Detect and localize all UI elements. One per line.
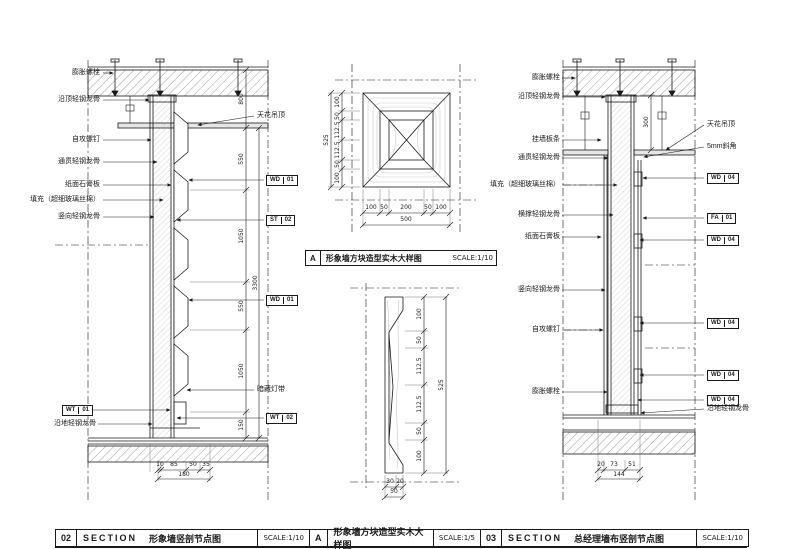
finish-tag-number: 01: [284, 177, 297, 184]
dimension-value: 35: [202, 462, 210, 468]
material-label: 竖向轻钢龙骨: [518, 286, 560, 294]
finish-tag-code: WD: [267, 297, 284, 304]
dimension-value: 1050: [239, 363, 245, 378]
drawing-number: A: [310, 530, 328, 546]
dimension-value: 550: [239, 300, 245, 311]
finish-tag-code: WT: [267, 415, 283, 422]
dimension-total: 180: [178, 472, 189, 478]
material-label: 沿顶轻钢龙骨: [58, 96, 100, 104]
finish-tag-code: WD: [708, 175, 725, 182]
dimension-value: 50: [417, 336, 423, 344]
dimension-value: 50: [335, 160, 341, 168]
drawing-title: 形象墙方块造型实木大样图: [328, 530, 433, 546]
dimension-value: 100: [335, 172, 341, 183]
finish-tag-number: 01: [284, 297, 297, 304]
dimension-value: 300: [644, 116, 650, 127]
finish-tag: WD 04: [707, 370, 739, 381]
material-label: 挂墙板条: [532, 136, 560, 144]
finish-tag-code: WD: [708, 320, 725, 327]
finish-tag-number: 01: [79, 407, 92, 414]
dimension-value: 50: [417, 427, 423, 435]
dimension-value: 100: [365, 205, 376, 211]
finish-tag-number: 04: [725, 175, 738, 182]
dimension-value: 10: [156, 462, 164, 468]
material-label: 沿地轻钢龙骨: [54, 420, 96, 428]
dimension-total: 525: [439, 379, 445, 390]
dimension-value: 100: [335, 96, 341, 107]
dimension-value: 50: [380, 205, 388, 211]
dimension-value: 85: [170, 462, 178, 468]
material-label: 沿地轻钢龙骨: [707, 405, 749, 413]
finish-tag-code: WT: [63, 407, 79, 414]
detail-key: A: [306, 251, 321, 265]
finish-tag: WD 01: [266, 295, 298, 306]
finish-tag-number: 01: [723, 215, 736, 222]
finish-tag: WD 04: [707, 173, 739, 184]
material-label: 通贯轻钢龙骨: [58, 158, 100, 166]
material-label: 自攻螺钉: [532, 326, 560, 334]
ceiling-label: 天花吊顶: [707, 121, 735, 129]
drawing-kind: SECTION: [502, 530, 568, 546]
dimension-value: 112.5: [417, 357, 423, 374]
title-block-middle: A 形象墙方块造型实木大样图 SCALE:1/5: [310, 530, 481, 546]
dimension-total: 144: [613, 472, 624, 478]
finish-tag-code: WD: [708, 397, 725, 404]
dimension-total: 525: [324, 134, 330, 145]
finish-tag-number: 04: [725, 372, 738, 379]
finish-tag-code: ST: [267, 217, 282, 224]
dimension-value: 112.5: [417, 395, 423, 412]
dimension-value: 1050: [239, 228, 245, 243]
finish-tag: WT 02: [266, 413, 297, 424]
drawing-scale: SCALE:1/10: [257, 530, 309, 546]
finish-tag-code: WD: [708, 372, 725, 379]
finish-tag-code: FA: [708, 215, 723, 222]
finish-tag-number: 02: [283, 415, 296, 422]
dimension-value: 550: [239, 153, 245, 164]
finish-tag-number: 04: [725, 320, 738, 327]
sheet-bottom-line: [55, 547, 747, 548]
material-label: 填充（超细玻璃丝棉）: [30, 196, 100, 204]
finish-tag-code: WD: [267, 177, 284, 184]
dimension-value: 150: [239, 419, 245, 430]
dimension-value: 50: [335, 112, 341, 120]
drawing-number: 03: [481, 530, 502, 546]
dimension-value: 51: [628, 462, 636, 468]
drawing-title: 总经理墙布竖剖节点图: [568, 530, 696, 546]
material-label: 沿顶轻钢龙骨: [518, 93, 560, 101]
dimension-value: 800: [239, 93, 245, 104]
material-label: 横撑轻钢龙骨: [518, 211, 560, 219]
finish-tag: WT 01: [62, 405, 93, 416]
ceiling-label: 天花吊顶: [257, 112, 285, 120]
cad-linework: [0, 0, 800, 549]
drawing-scale: SCALE:1/5: [433, 530, 480, 546]
finish-tag: WD 01: [266, 175, 298, 186]
dimension-value: 20: [597, 462, 605, 468]
title-block-right: 03 SECTION 总经理墙布竖剖节点图 SCALE:1/10: [481, 530, 748, 546]
material-label: 纸面石膏板: [65, 181, 100, 189]
material-label: 通贯轻钢龙骨: [518, 154, 560, 162]
sheet-title-strip: 02 SECTION 形象墙竖剖节点图 SCALE:1/10 A 形象墙方块造型…: [55, 529, 749, 547]
finish-tag: FA 01: [707, 213, 736, 224]
finish-tag: ST 02: [266, 215, 295, 226]
dimension-value: 112.5: [335, 121, 341, 138]
dimension-total: 3300: [253, 275, 259, 290]
chamfer-label: 5mm斜角: [707, 143, 737, 151]
dimension-value: 73: [610, 462, 618, 468]
dimension-value: 50: [424, 205, 432, 211]
dimension-value: 100: [417, 450, 423, 461]
finish-tag-number: 04: [725, 397, 738, 404]
material-label: 膨胀螺栓: [532, 388, 560, 396]
title-block-left: 02 SECTION 形象墙竖剖节点图 SCALE:1/10: [56, 530, 310, 546]
dimension-value: 100: [417, 308, 423, 319]
material-label: 膨胀螺栓: [72, 69, 100, 77]
detail-title-bar: A 形象墙方块造型实木大样图 SCALE:1/10: [305, 250, 497, 266]
detail-scale: SCALE:1/10: [449, 251, 496, 265]
material-label: 纸面石膏板: [525, 233, 560, 241]
material-label: 膨胀螺栓: [532, 74, 560, 82]
dimension-value: 30: [386, 479, 394, 485]
material-label: 竖向轻钢龙骨: [58, 213, 100, 221]
drawing-sheet: 膨胀螺栓 沿顶轻钢龙骨 自攻螺钉 通贯轻钢龙骨 纸面石膏板 填充（超细玻璃丝棉）…: [0, 0, 800, 549]
dimension-value: 200: [400, 205, 411, 211]
dimension-total: 50: [390, 489, 398, 495]
dimension-value: 20: [396, 479, 404, 485]
finish-tag: WD 04: [707, 235, 739, 246]
finish-tag: WD 04: [707, 318, 739, 329]
dimension-total: 500: [400, 217, 411, 223]
drawing-kind: SECTION: [77, 530, 143, 546]
detail-title: 形象墙方块造型实木大样图: [321, 251, 450, 265]
material-label: 自攻螺钉: [72, 136, 100, 144]
dimension-value: 50: [189, 462, 197, 468]
finish-tag-number: 02: [282, 217, 295, 224]
dimension-value: 112.5: [335, 141, 341, 158]
drawing-title: 形象墙竖剖节点图: [143, 530, 257, 546]
material-label: 填充（超细玻璃丝棉）: [490, 181, 560, 189]
finish-tag-number: 04: [725, 237, 738, 244]
cove-light-label: 暗藏灯带: [257, 386, 285, 394]
finish-tag-code: WD: [708, 237, 725, 244]
drawing-scale: SCALE:1/10: [696, 530, 748, 546]
drawing-number: 02: [56, 530, 77, 546]
dimension-value: 100: [435, 205, 446, 211]
